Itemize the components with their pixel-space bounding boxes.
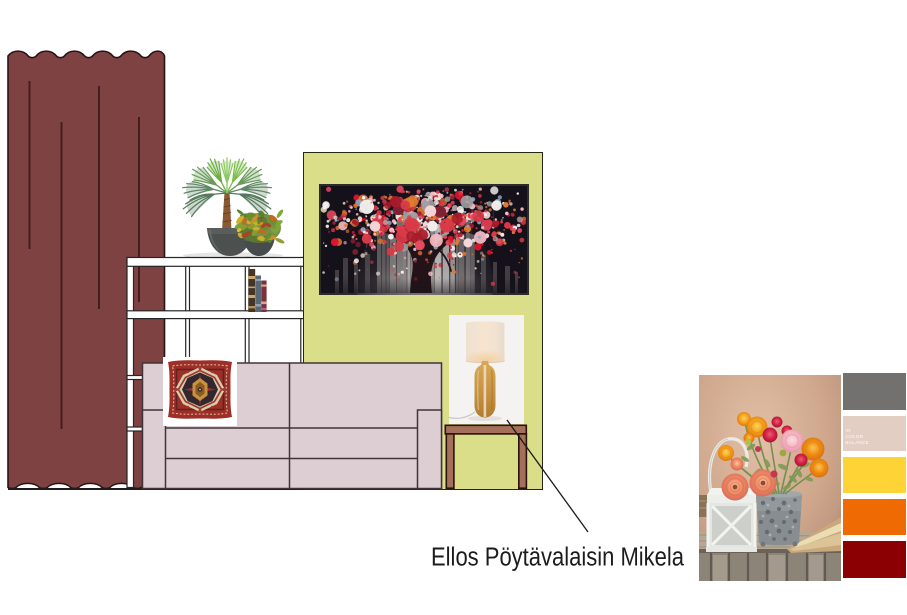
svg-text:Ellos Pöytävalaisin Mikela: Ellos Pöytävalaisin Mikela — [431, 541, 684, 571]
